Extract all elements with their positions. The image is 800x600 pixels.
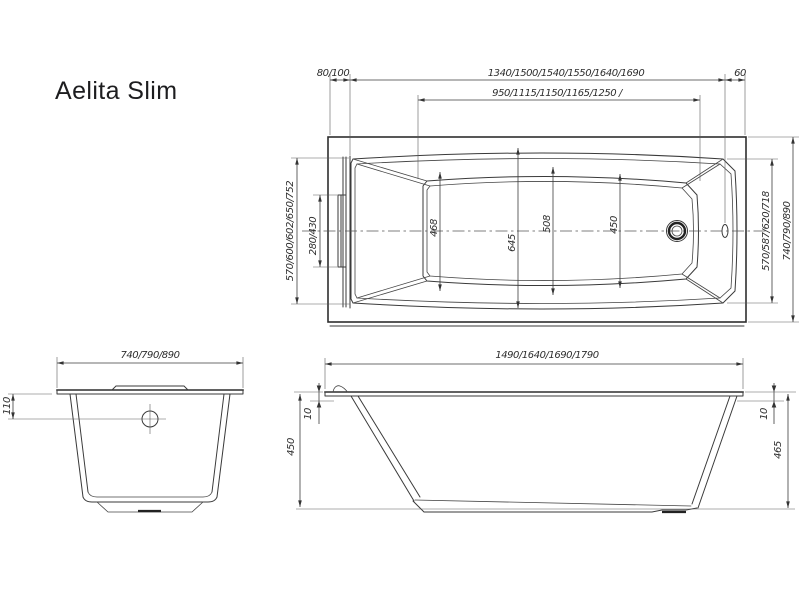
end-bottom-outer [83, 497, 217, 502]
dim-inner-width-right: 570/587/620/718 [761, 191, 772, 271]
dim-overflow-depth: 110 [2, 397, 13, 415]
side-walls [351, 396, 737, 508]
end-linework [8, 386, 243, 512]
end-dimensions: 740/790/890 110 [2, 350, 243, 419]
dim-rim-lip-left: 10 [303, 408, 314, 420]
dim-rim-width-max: 645 [507, 234, 518, 252]
dim-overflow-to-edge: 60 [734, 68, 746, 79]
plan-view: 80/100 1340/1500/1540/1550/1640/1690 60 … [285, 68, 799, 326]
end-view: 740/790/890 110 [2, 350, 243, 512]
dim-height-right: 465 [773, 441, 784, 459]
dim-edge-to-headrest: 80/100 [317, 68, 350, 79]
headrest-panel [343, 156, 350, 308]
plan-linework [302, 137, 766, 326]
dim-bottom-length: 950/1115/1150/1165/1250 / [492, 88, 624, 99]
dim-length-variants: 1340/1500/1540/1550/1640/1690 [488, 68, 645, 79]
dim-bottom-width-head: 468 [429, 219, 440, 237]
dim-headrest-width: 280/430 [308, 217, 319, 255]
dim-end-overall-width: 740/790/890 [120, 350, 179, 361]
dim-rim-lip-right: 10 [759, 408, 770, 420]
overflow-crosshair [8, 404, 166, 434]
dim-bottom-width-mid: 508 [542, 215, 553, 233]
side-floor-line [415, 500, 691, 506]
dim-side-overall-length: 1490/1640/1690/1790 [495, 350, 598, 361]
dim-height-left: 450 [286, 438, 297, 456]
dim-overall-width: 740/790/890 [782, 201, 793, 260]
dim-bottom-width-foot: 450 [609, 216, 620, 234]
side-view: 1490/1640/1690/1790 10 450 10 465 [286, 350, 796, 512]
headrest-bump [333, 386, 348, 392]
tub-outer-rect [328, 137, 746, 322]
technical-drawing: 80/100 1340/1500/1540/1550/1640/1690 60 … [0, 0, 800, 600]
dim-inner-width-left: 570/600/602/650/752 [285, 181, 296, 281]
side-dimensions: 1490/1640/1690/1790 10 450 10 465 [286, 350, 796, 508]
plan-dimensions: 80/100 1340/1500/1540/1550/1640/1690 60 … [285, 68, 799, 322]
side-linework [296, 386, 795, 512]
drawing-sheet: Aelita Slim [0, 0, 800, 600]
end-bottom-inner [88, 492, 212, 497]
